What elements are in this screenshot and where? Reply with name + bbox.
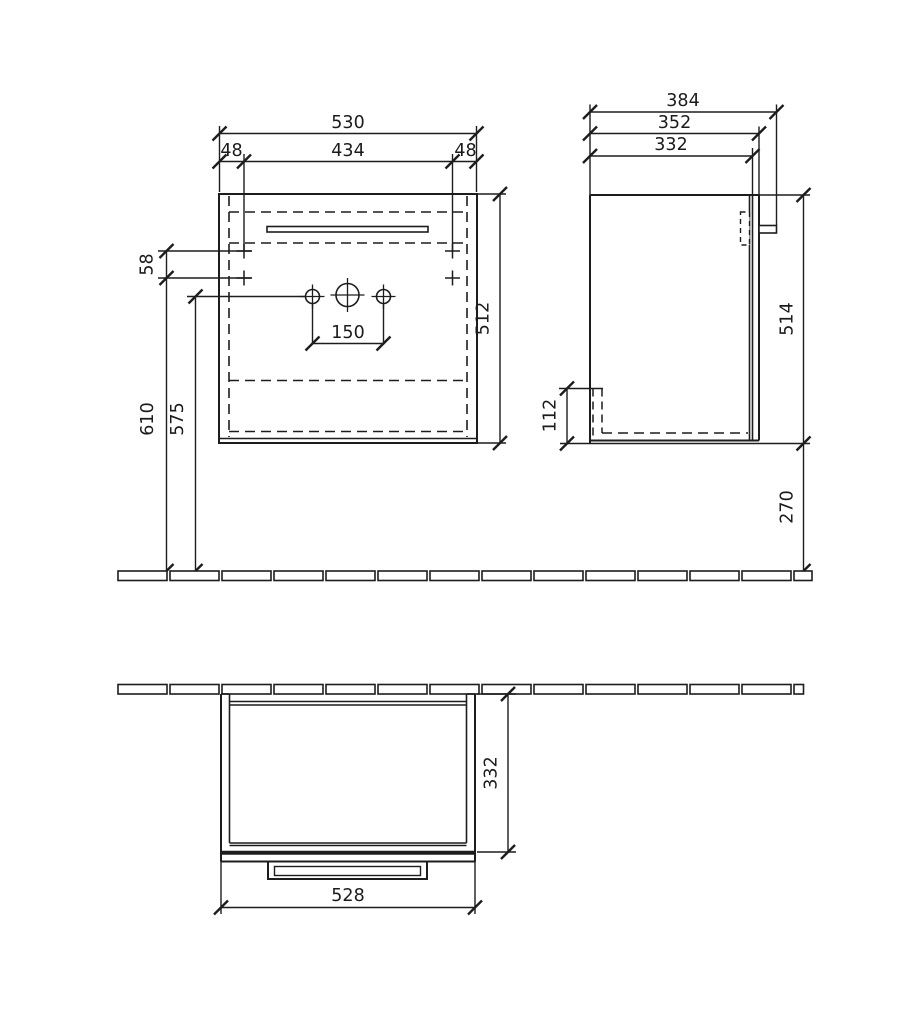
dim-332-side: 332 — [583, 135, 760, 195]
dim-label-528: 528 — [331, 886, 364, 906]
dim-label-270: 270 — [778, 490, 798, 523]
top-view: 332 528 — [214, 687, 516, 915]
dim-384: 384 — [583, 91, 784, 226]
mounting-rail-lower — [118, 685, 804, 695]
dim-label-58: 58 — [138, 253, 158, 275]
dim-label-610: 610 — [138, 402, 158, 435]
dim-label-575: 575 — [168, 402, 188, 435]
dim-label-434: 434 — [331, 141, 364, 161]
dim-label-332-side: 332 — [654, 135, 687, 155]
vanity-cabinet-drawing: 530 48 434 48 58 610 — [0, 0, 898, 1024]
front-view: 530 48 434 48 58 610 — [138, 113, 508, 578]
top-handle-outer — [268, 862, 427, 880]
technical-drawing-page: 530 48 434 48 58 610 — [0, 0, 898, 1024]
dim-514: 514 — [778, 188, 811, 451]
side-handle-profile — [759, 226, 777, 234]
dim-label-512: 512 — [474, 302, 494, 335]
dim-label-530: 530 — [331, 113, 364, 133]
dim-58: 58 — [138, 244, 174, 285]
side-hinge-dashed — [741, 212, 750, 245]
dim-label-514: 514 — [778, 302, 798, 335]
mounting-rail-upper — [118, 571, 812, 581]
dim-label-150: 150 — [331, 323, 364, 343]
dim-label-48-left: 48 — [220, 141, 242, 161]
dim-332-top: 332 — [477, 687, 516, 859]
dim-label-384: 384 — [666, 91, 699, 111]
dim-270: 270 — [778, 444, 811, 579]
dim-label-352: 352 — [658, 113, 691, 133]
dim-label-332-top: 332 — [482, 756, 502, 789]
front-handle-slot — [267, 227, 428, 233]
dim-label-48-right: 48 — [454, 141, 476, 161]
dim-label-112: 112 — [541, 399, 561, 432]
dim-512: 512 — [474, 187, 508, 450]
side-view: 384 352 332 514 270 — [541, 91, 811, 578]
